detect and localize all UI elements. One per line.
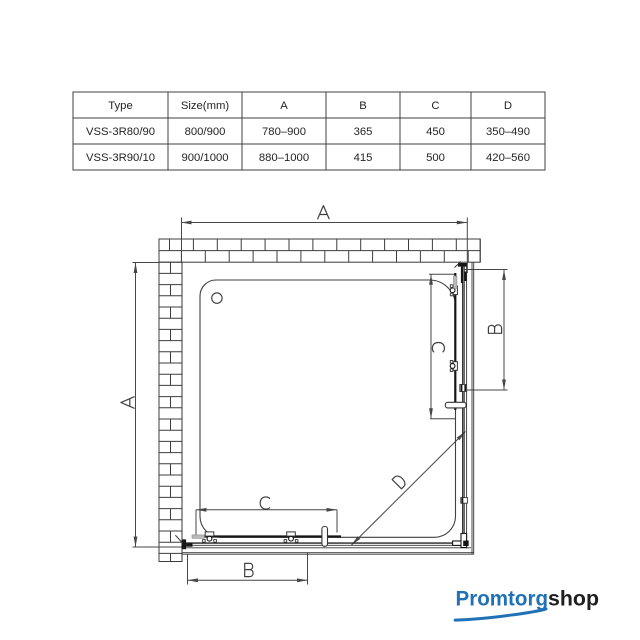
svg-text:shop: shop	[548, 586, 599, 610]
svg-text:Type: Type	[108, 100, 133, 112]
svg-text:365: 365	[354, 126, 373, 138]
svg-text:C: C	[431, 100, 439, 112]
svg-text:900/1000: 900/1000	[181, 152, 228, 164]
svg-text:A: A	[280, 100, 288, 112]
svg-text:D: D	[504, 100, 512, 112]
svg-text:450: 450	[426, 126, 445, 138]
svg-text:880–1000: 880–1000	[259, 152, 309, 164]
svg-text:B: B	[359, 100, 367, 112]
svg-text:Promtorg: Promtorg	[456, 586, 549, 610]
svg-text:800/900: 800/900	[185, 126, 226, 138]
svg-text:415: 415	[354, 152, 373, 164]
svg-text:350–490: 350–490	[486, 126, 530, 138]
svg-text:500: 500	[426, 152, 445, 164]
svg-text:420–560: 420–560	[486, 152, 530, 164]
svg-text:VSS-3R80/90: VSS-3R80/90	[86, 126, 155, 138]
svg-text:780–900: 780–900	[262, 126, 306, 138]
svg-text:Size(mm): Size(mm)	[181, 100, 230, 112]
svg-text:VSS-3R90/10: VSS-3R90/10	[86, 152, 155, 164]
